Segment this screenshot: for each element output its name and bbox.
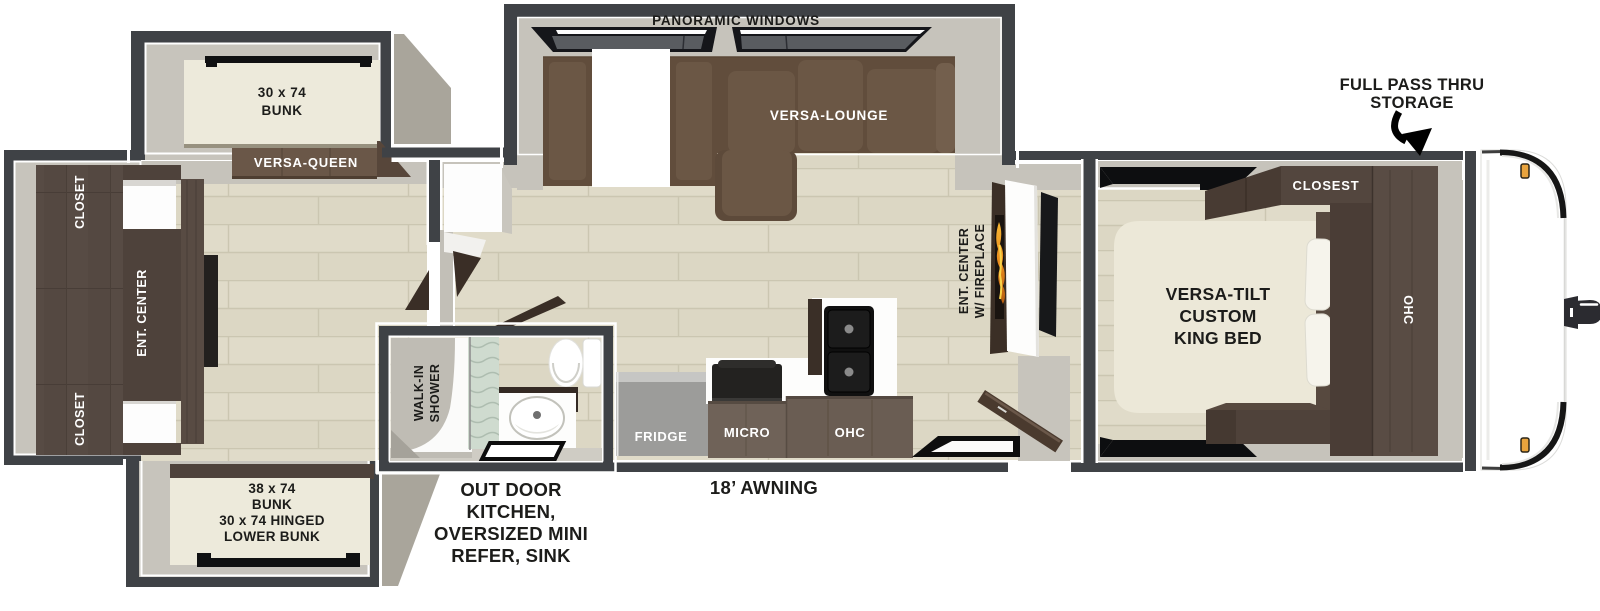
svg-text:30 x 74 HINGED: 30 x 74 HINGED [219, 513, 325, 528]
svg-text:CLOSEST: CLOSEST [1293, 178, 1360, 193]
svg-text:OHC: OHC [1401, 295, 1415, 325]
svg-text:ENT. CENTER: ENT. CENTER [135, 269, 149, 356]
svg-text:FRIDGE: FRIDGE [635, 429, 688, 444]
svg-text:KITCHEN,: KITCHEN, [467, 501, 556, 522]
svg-text:SHOWER: SHOWER [428, 364, 442, 423]
svg-text:KING BED: KING BED [1174, 328, 1262, 348]
svg-text:18’ AWNING: 18’ AWNING [710, 477, 818, 498]
svg-text:38 x 74: 38 x 74 [248, 481, 295, 496]
svg-text:VERSA-LOUNGE: VERSA-LOUNGE [770, 108, 888, 123]
svg-text:W/ FIREPLACE: W/ FIREPLACE [973, 224, 987, 318]
svg-text:WALK-IN: WALK-IN [412, 365, 426, 421]
svg-text:BUNK: BUNK [262, 103, 303, 118]
svg-text:CUSTOM: CUSTOM [1179, 306, 1256, 326]
svg-text:BUNK: BUNK [252, 497, 292, 512]
svg-text:PANORAMIC WINDOWS: PANORAMIC WINDOWS [652, 13, 820, 28]
svg-text:VERSA-TILT: VERSA-TILT [1166, 284, 1271, 304]
svg-text:CLOSET: CLOSET [73, 392, 87, 446]
svg-text:OHC: OHC [835, 425, 866, 440]
svg-text:OUT DOOR: OUT DOOR [460, 479, 561, 500]
svg-text:OVERSIZED MINI: OVERSIZED MINI [434, 523, 588, 544]
svg-text:CLOSET: CLOSET [73, 175, 87, 229]
svg-text:FULL PASS THRU: FULL PASS THRU [1340, 76, 1485, 94]
svg-text:MICRO: MICRO [724, 425, 770, 440]
svg-text:30 x 74: 30 x 74 [258, 85, 307, 100]
svg-text:ENT. CENTER: ENT. CENTER [957, 228, 971, 314]
svg-text:STORAGE: STORAGE [1370, 94, 1453, 112]
svg-text:REFER, SINK: REFER, SINK [451, 545, 571, 566]
svg-text:VERSA-QUEEN: VERSA-QUEEN [254, 155, 358, 170]
svg-text:LOWER BUNK: LOWER BUNK [224, 529, 320, 544]
